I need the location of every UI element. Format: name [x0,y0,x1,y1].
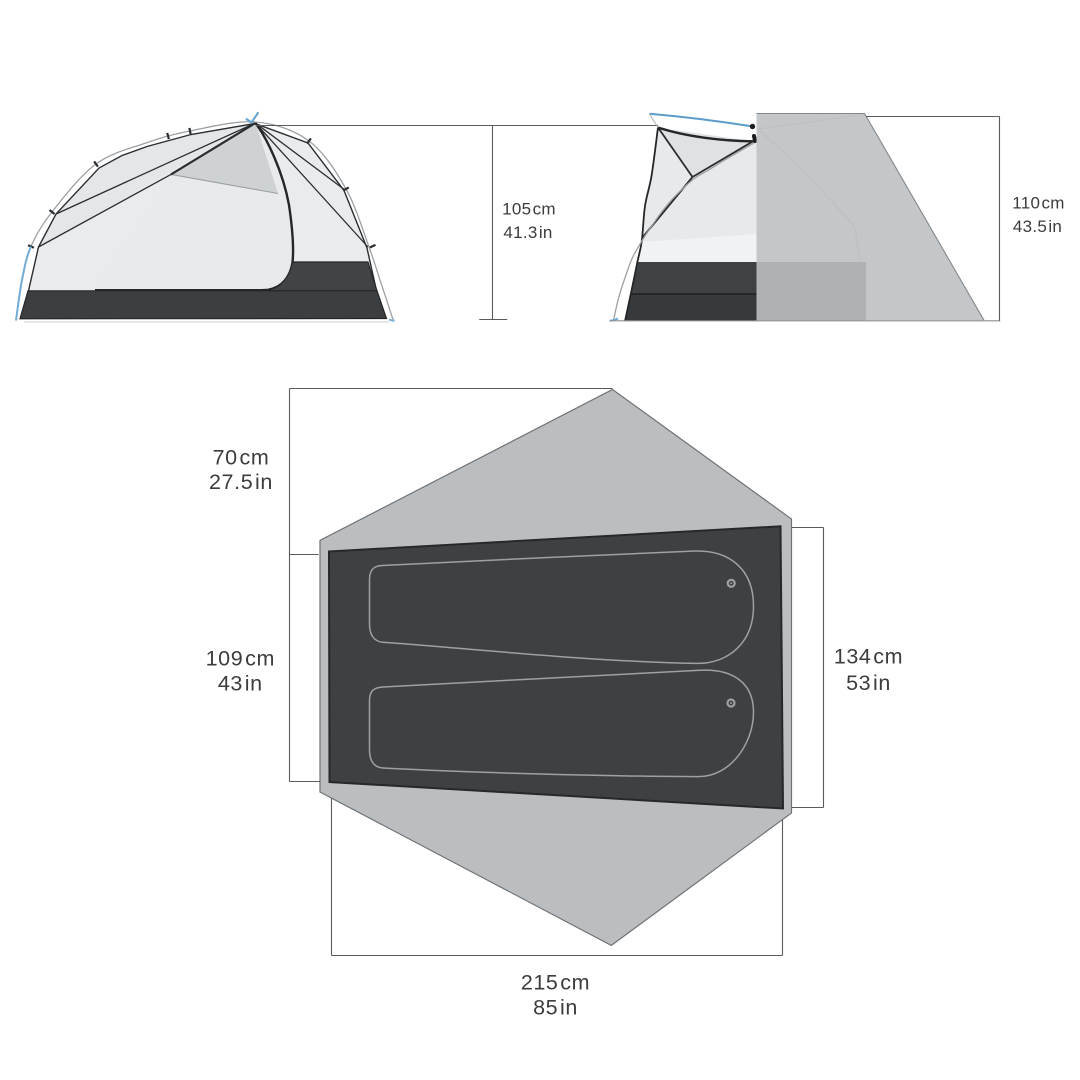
svg-text:85in: 85in [533,995,578,1019]
svg-text:109cm: 109cm [206,646,275,670]
svg-text:43in: 43in [218,672,263,696]
svg-text:105cm: 105cm [502,200,556,219]
svg-text:110cm: 110cm [1012,193,1064,212]
svg-text:215cm: 215cm [521,971,590,995]
svg-text:70cm: 70cm [213,445,270,469]
svg-text:43.5in: 43.5in [1013,217,1062,236]
svg-text:134cm: 134cm [834,644,903,668]
svg-text:27.5in: 27.5in [209,470,273,494]
svg-text:53in: 53in [846,671,891,695]
svg-text:41.3in: 41.3in [503,223,552,242]
